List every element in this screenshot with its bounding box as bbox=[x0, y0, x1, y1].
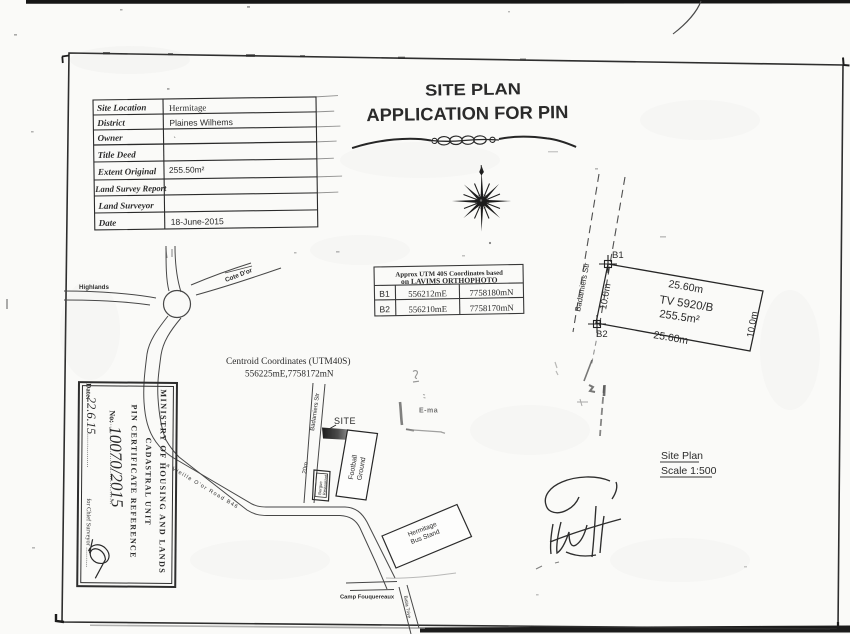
svg-text:for Chief Surveyor: for Chief Surveyor bbox=[85, 498, 92, 547]
svg-text:.................: ................. bbox=[85, 433, 92, 467]
svg-text:10.0m: 10.0m bbox=[598, 283, 613, 311]
svg-text:Site Location: Site Location bbox=[97, 102, 146, 113]
svg-text:Centroid Coordinates (UTM40S): Centroid Coordinates (UTM40S) bbox=[226, 356, 350, 367]
svg-text:18-June-2015: 18-June-2015 bbox=[171, 216, 224, 227]
svg-text:Badamiers Str: Badamiers Str bbox=[573, 262, 591, 313]
svg-text:7758170mN: 7758170mN bbox=[470, 303, 515, 314]
svg-text:CADASTRAL UNIT: CADASTRAL UNIT bbox=[143, 438, 153, 526]
svg-text:SITE: SITE bbox=[334, 416, 356, 426]
svg-text:255.50m²: 255.50m² bbox=[169, 164, 205, 174]
svg-text:22.6.15: 22.6.15 bbox=[84, 397, 98, 435]
svg-text:`: ` bbox=[174, 137, 176, 144]
svg-text:10.0m: 10.0m bbox=[745, 311, 760, 339]
svg-text:556210mE: 556210mE bbox=[408, 304, 447, 315]
svg-text:Site Plan: Site Plan bbox=[661, 450, 703, 462]
svg-text:B1: B1 bbox=[379, 289, 390, 299]
svg-text:Title Deed: Title Deed bbox=[98, 149, 137, 160]
svg-text:Extent Original: Extent Original bbox=[97, 166, 157, 177]
svg-text:25.60m: 25.60m bbox=[652, 329, 689, 347]
svg-text:25.60m: 25.60m bbox=[667, 278, 704, 296]
svg-text:Scale 1:500: Scale 1:500 bbox=[661, 465, 717, 477]
svg-text:Hermitage: Hermitage bbox=[169, 102, 206, 113]
svg-text:APPLICATION FOR PIN: APPLICATION FOR PIN bbox=[366, 102, 568, 125]
svg-text:20m: 20m bbox=[302, 462, 310, 475]
svg-text:Owner: Owner bbox=[97, 133, 123, 143]
svg-text:Camp Fouquereaux: Camp Fouquereaux bbox=[340, 595, 395, 601]
svg-text:556212mE: 556212mE bbox=[408, 288, 447, 299]
svg-text:Restaurant: Restaurant bbox=[322, 474, 329, 496]
svg-text:on LAVIMS ORTHOPHOTO: on LAVIMS ORTHOPHOTO bbox=[401, 275, 498, 286]
svg-text:B2: B2 bbox=[379, 304, 390, 314]
svg-text:Date: Date bbox=[98, 218, 117, 228]
svg-text:E-ma: E-ma bbox=[419, 408, 438, 415]
svg-text:7758180mN: 7758180mN bbox=[469, 287, 514, 298]
svg-text:MINISTRY OF HOUSING AND LANDS: MINISTRY OF HOUSING AND LANDS bbox=[157, 389, 168, 574]
svg-text:PIN CERTIFICATE REFERENCE: PIN CERTIFICATE REFERENCE bbox=[128, 404, 138, 558]
svg-text:Plaines Wilhems: Plaines Wilhems bbox=[169, 117, 233, 128]
svg-text:B2: B2 bbox=[596, 329, 608, 340]
svg-text:B1: B1 bbox=[612, 250, 624, 261]
svg-text:Land Survey Report: Land Survey Report bbox=[94, 183, 167, 194]
svg-text:556225mE,7758172mN: 556225mE,7758172mN bbox=[245, 369, 334, 379]
svg-text:Land Surveyor: Land Surveyor bbox=[97, 200, 154, 211]
svg-text:SITE PLAN: SITE PLAN bbox=[425, 80, 521, 100]
svg-text:10070/2015: 10070/2015 bbox=[106, 426, 127, 508]
svg-text:District: District bbox=[96, 118, 125, 128]
